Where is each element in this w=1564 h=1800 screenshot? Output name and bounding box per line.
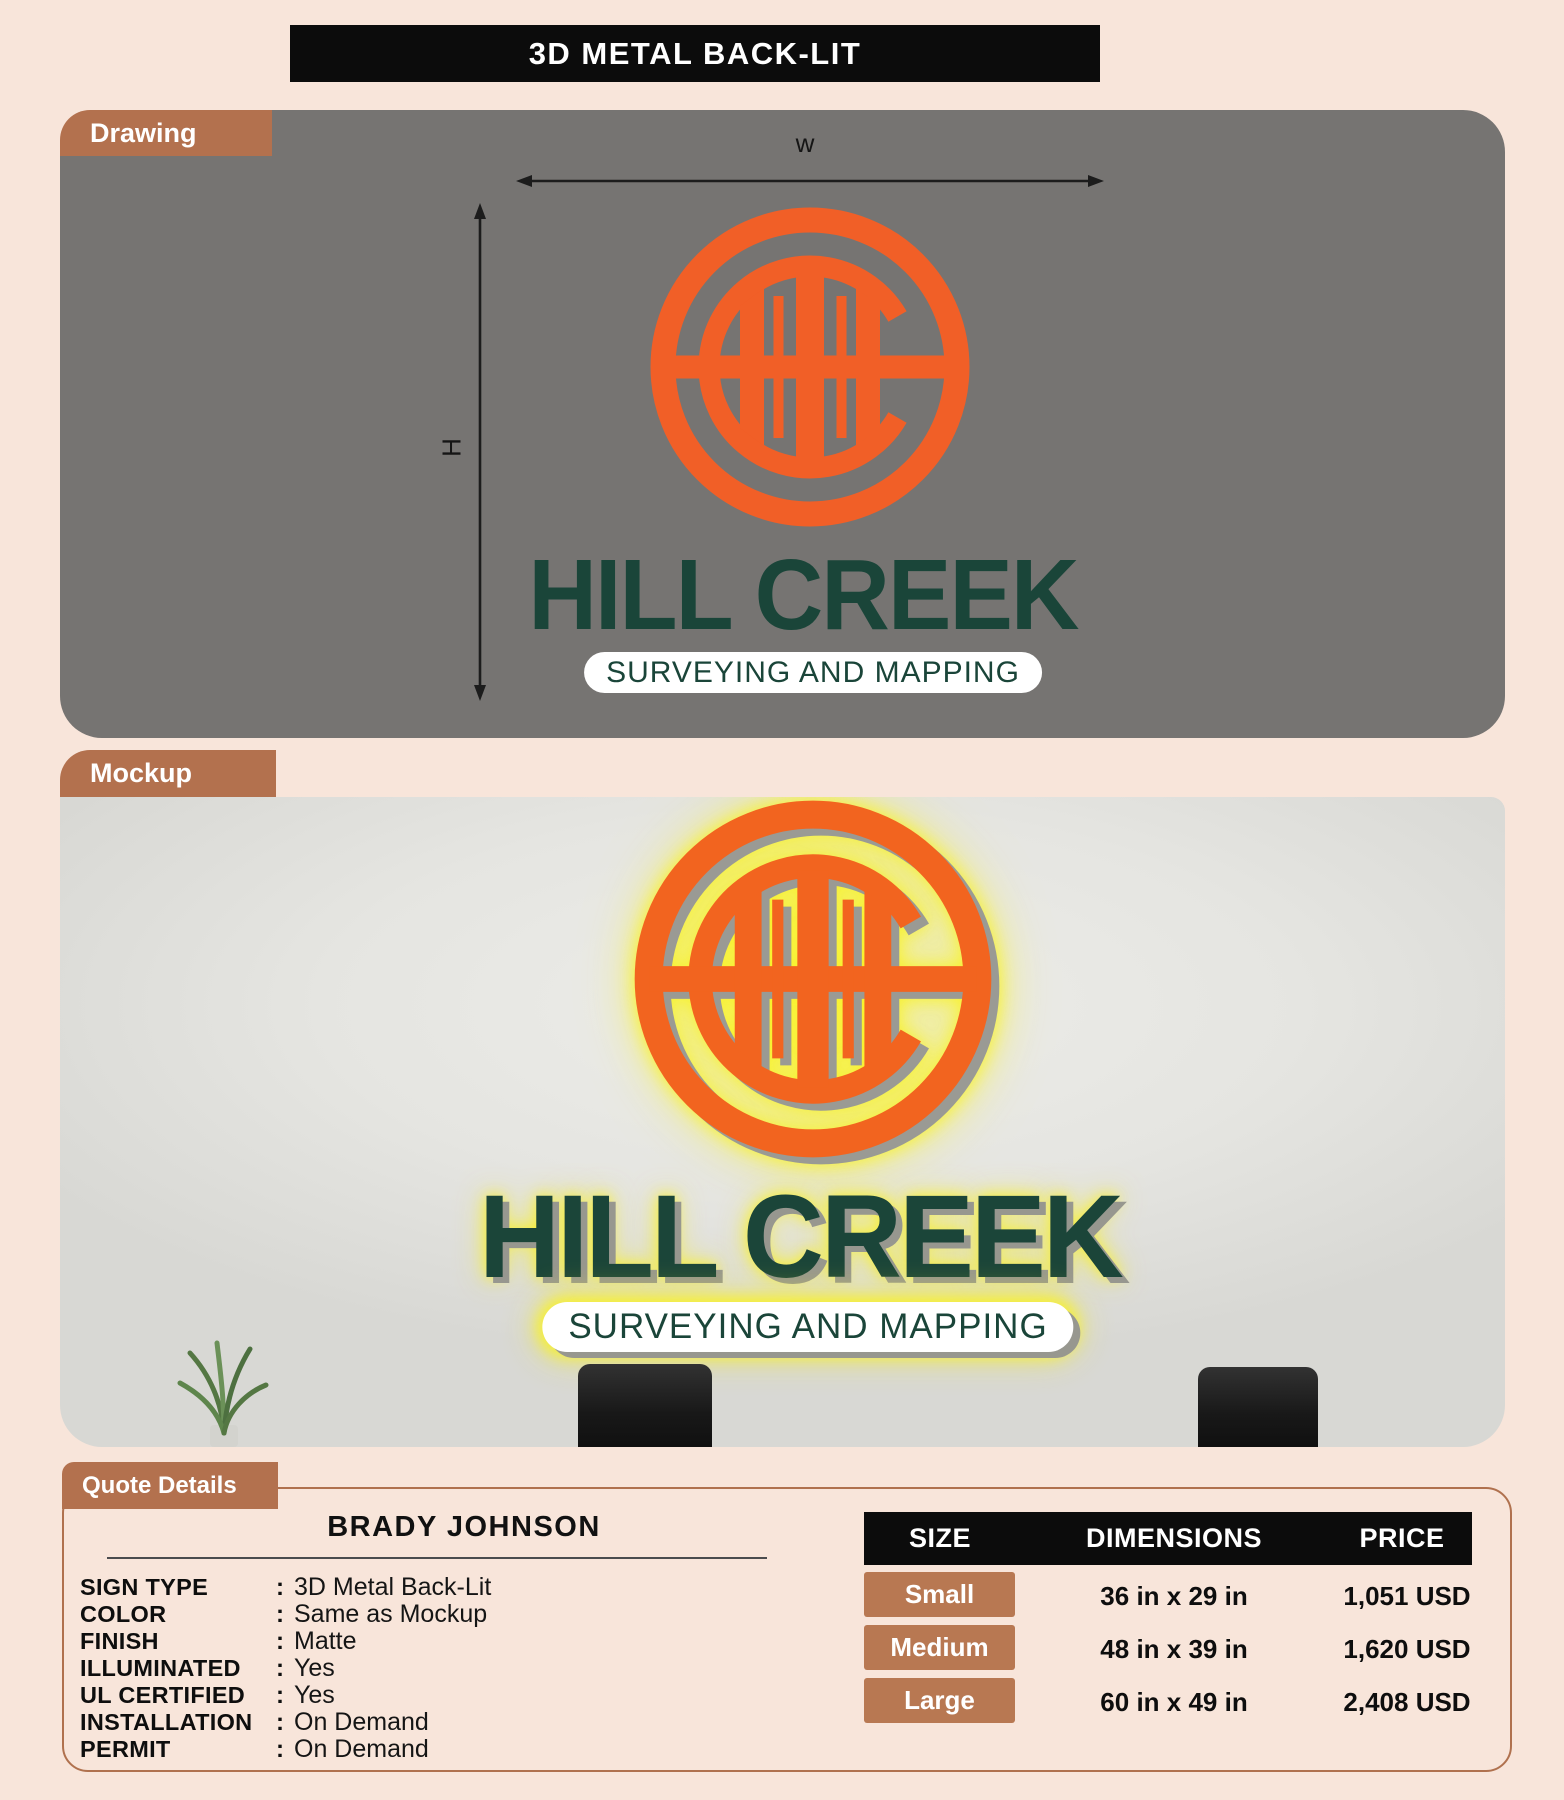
hill-creek-logo-mark: [649, 206, 971, 528]
spec-row-illuminated: ILLUMINATED:Yes: [80, 1654, 491, 1681]
col-header-size: SIZE: [864, 1523, 1016, 1554]
col-header-price: PRICE: [1332, 1523, 1472, 1554]
price-small: 1,051 USD: [1332, 1581, 1482, 1612]
size-button-small[interactable]: Small: [864, 1572, 1015, 1617]
mockup-panel: HILL CREEK SURVEYING AND MAPPING: [60, 797, 1505, 1447]
drawing-tab: Drawing: [60, 110, 272, 156]
mockup-tab-label: Mockup: [90, 758, 192, 789]
height-dimension-label: H: [437, 418, 468, 478]
quote-details-tab: Quote Details: [62, 1462, 278, 1509]
page-title-bar: 3D METAL BACK-LIT: [290, 25, 1100, 82]
spec-list: SIGN TYPE:3D Metal Back-Lit COLOR:Same a…: [80, 1573, 491, 1762]
brand-name-backlit: HILL CREEK: [479, 1178, 1121, 1296]
col-header-dimensions: DIMENSIONS: [1016, 1523, 1332, 1554]
mockup-tab: Mockup: [60, 750, 276, 797]
spec-row-installation: INSTALLATION:On Demand: [80, 1708, 491, 1735]
spec-row-permit: PERMIT:On Demand: [80, 1735, 491, 1762]
chair-backrest-left: [578, 1364, 712, 1447]
dimensions-medium: 48 in x 39 in: [1016, 1634, 1332, 1665]
quote-details-panel: BRADY JOHNSON SIGN TYPE:3D Metal Back-Li…: [62, 1487, 1512, 1772]
size-button-large[interactable]: Large: [864, 1678, 1015, 1723]
hill-creek-logo-mark-backlit: [633, 799, 993, 1159]
drawing-panel: w H HILL CREEK SURVEYING AND MAPPING: [60, 110, 1505, 738]
dimensions-large: 60 in x 49 in: [1016, 1687, 1332, 1718]
drawing-tab-label: Drawing: [90, 118, 197, 149]
width-dimension-arrow: [515, 172, 1105, 190]
plant-decoration: [160, 1337, 290, 1447]
chair-backrest-right: [1198, 1367, 1318, 1447]
spec-row-sign-type: SIGN TYPE:3D Metal Back-Lit: [80, 1573, 491, 1600]
quote-details-tab-label: Quote Details: [82, 1472, 237, 1500]
price-table-header: SIZE DIMENSIONS PRICE: [864, 1512, 1472, 1565]
customer-name: BRADY JOHNSON: [139, 1511, 789, 1544]
spec-row-color: COLOR:Same as Mockup: [80, 1600, 491, 1627]
dimensions-small: 36 in x 29 in: [1016, 1581, 1332, 1612]
brand-tagline-pill-backlit: SURVEYING AND MAPPING: [542, 1302, 1073, 1352]
brand-tagline-pill: SURVEYING AND MAPPING: [584, 652, 1042, 693]
spec-row-finish: FINISH:Matte: [80, 1627, 491, 1654]
brand-tagline-backlit: SURVEYING AND MAPPING: [568, 1307, 1047, 1347]
spec-row-ul-certified: UL CERTIFIED:Yes: [80, 1681, 491, 1708]
width-dimension-label: w: [775, 128, 835, 159]
brand-tagline: SURVEYING AND MAPPING: [606, 656, 1020, 690]
price-large: 2,408 USD: [1332, 1687, 1482, 1718]
customer-name-divider: [107, 1557, 767, 1559]
size-button-medium[interactable]: Medium: [864, 1625, 1015, 1670]
page-title: 3D METAL BACK-LIT: [529, 36, 862, 72]
price-medium: 1,620 USD: [1332, 1634, 1482, 1665]
height-dimension-arrow: [471, 202, 489, 702]
brand-name: HILL CREEK: [528, 545, 1077, 645]
